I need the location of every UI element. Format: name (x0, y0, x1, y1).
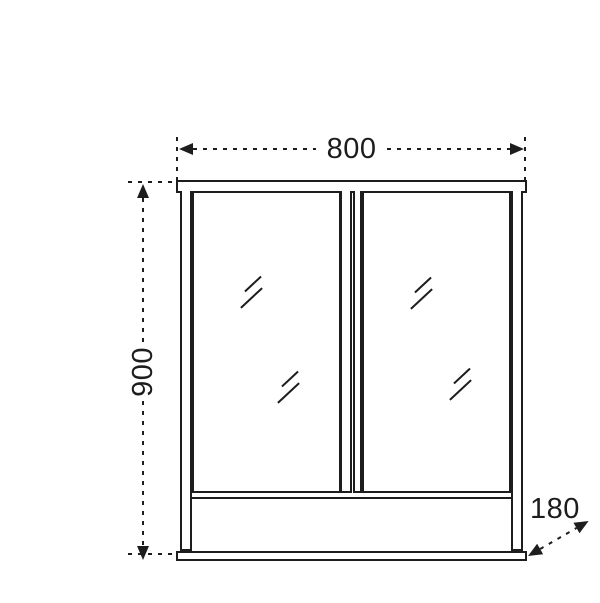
glass-hatch-mark (405, 273, 439, 309)
cabinet-base-plinth (176, 551, 527, 561)
width-extension-line-right (524, 137, 526, 180)
apron-top-divider-line (192, 497, 511, 499)
dimension-dash-segment (193, 148, 316, 150)
width-extension-line-left (176, 137, 178, 180)
dimension-dash-segment (387, 148, 510, 150)
arrowhead-left-icon (179, 143, 193, 155)
arrowhead-up-icon (137, 184, 149, 198)
right-mirror-door-panel (362, 191, 511, 493)
cabinet-right-stile (511, 191, 523, 551)
arrowhead-right-icon (510, 143, 524, 155)
center-stile-right (353, 191, 362, 493)
dimension-dash-segment (142, 401, 144, 546)
height-dimension-label: 900 (129, 347, 158, 397)
arrowhead-down-icon (137, 546, 149, 560)
width-dimension-line: 800 (179, 142, 524, 156)
glass-hatch-mark (444, 364, 478, 400)
center-stile-left (340, 191, 352, 493)
glass-hatch-mark (272, 367, 306, 403)
left-mirror-door-panel (192, 191, 341, 493)
dimension-dash-segment (540, 527, 577, 550)
height-dimension-line: 900 (131, 184, 155, 560)
glass-hatch-mark (235, 272, 269, 308)
width-dimension-label: 800 (327, 135, 377, 164)
cabinet-left-stile (180, 191, 192, 551)
height-extension-line-top (128, 181, 174, 183)
dimension-drawing: 800 900 180 (0, 0, 600, 603)
dimension-dash-segment (142, 198, 144, 343)
